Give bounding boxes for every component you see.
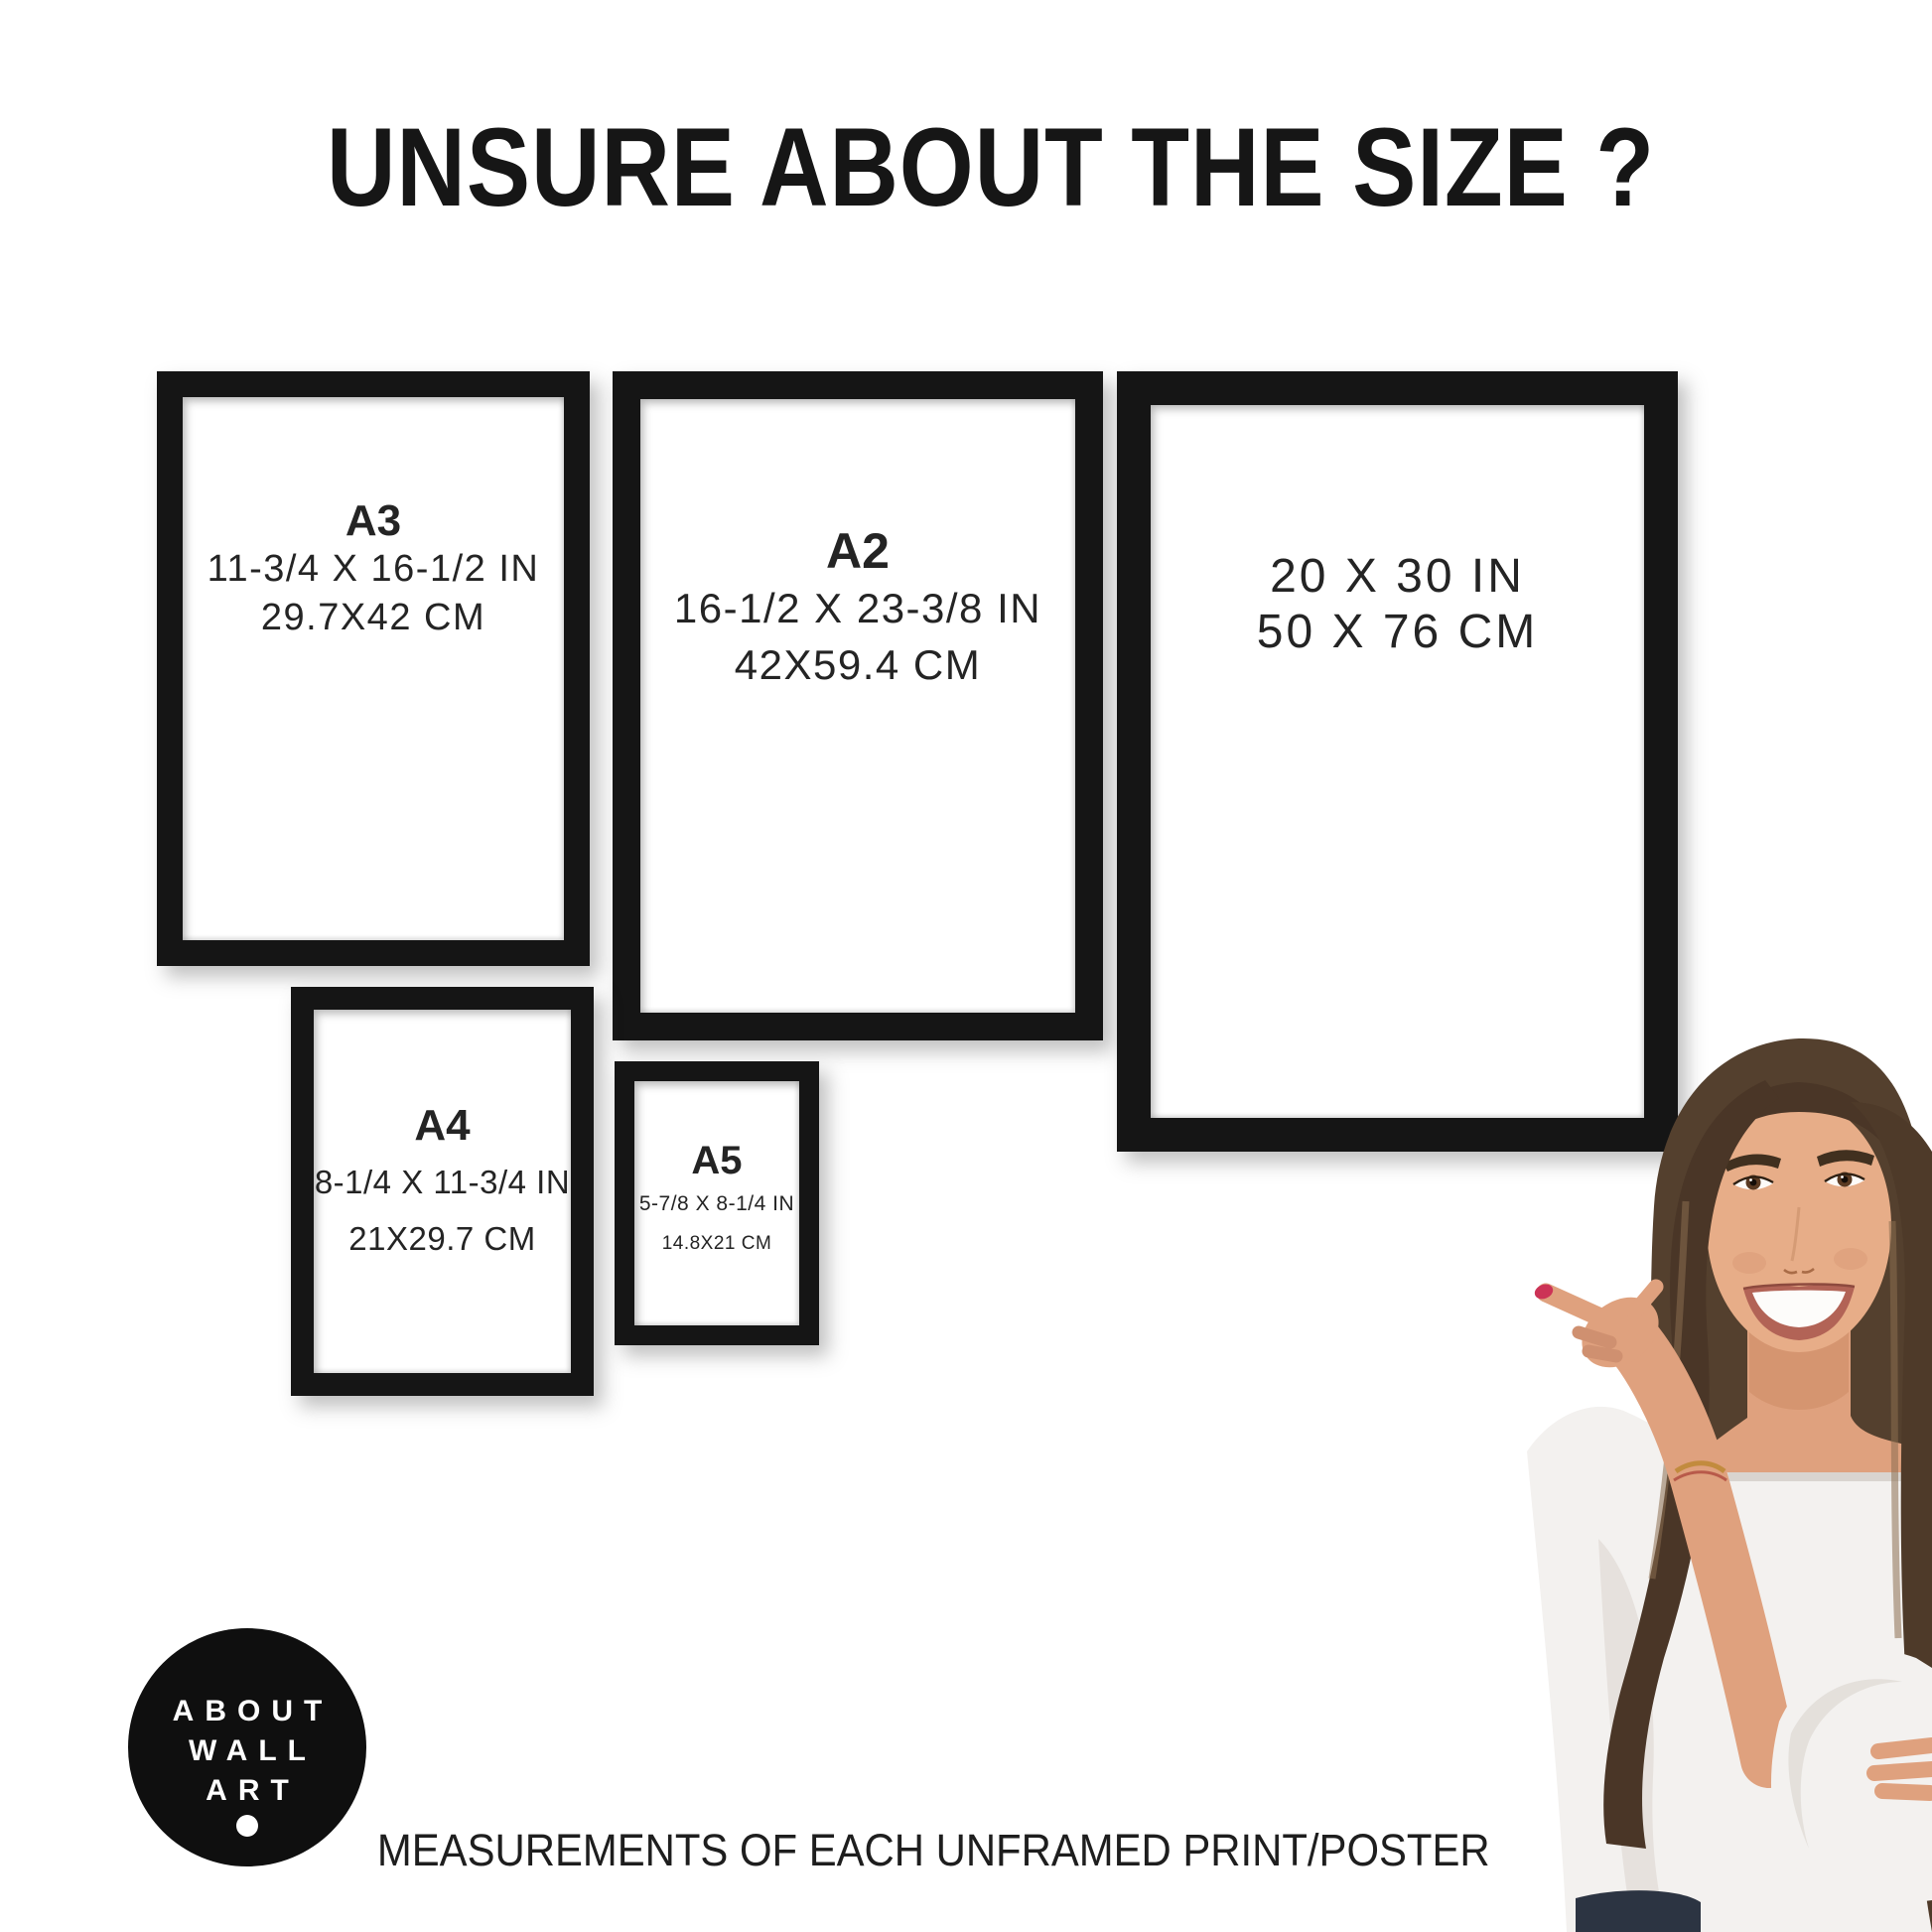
index-finger (1546, 1293, 1598, 1316)
logo-dot (236, 1815, 258, 1837)
frame-a2-label: A2 (640, 523, 1075, 580)
frame-a5-inches: 5-7/8 X 8-1/4 IN (634, 1184, 799, 1224)
logo-line-art: ART (139, 1771, 366, 1811)
frame-20x30-cm: 50 X 76 CM (1151, 605, 1644, 660)
frame-a4-cm: 21X29.7 CM (314, 1210, 571, 1267)
frame-a4-text: A4 8-1/4 X 11-3/4 IN 21X29.7 CM (314, 1097, 571, 1267)
frame-a3-cm: 29.7X42 CM (183, 594, 564, 642)
frame-a5: A5 5-7/8 X 8-1/4 IN 14.8X21 CM (615, 1061, 819, 1345)
frame-a3-text: A3 11-3/4 X 16-1/2 IN 29.7X42 CM (183, 496, 564, 642)
frame-a2: A2 16-1/2 X 23-3/8 IN 42X59.4 CM (613, 371, 1103, 1040)
jeans (1576, 1890, 1701, 1932)
brand-logo: ABOUT WALL ART (128, 1628, 366, 1866)
frame-a5-mat: A5 5-7/8 X 8-1/4 IN 14.8X21 CM (634, 1081, 799, 1325)
frame-a3-label: A3 (183, 496, 564, 545)
frame-a4-inches: 8-1/4 X 11-3/4 IN (314, 1154, 571, 1210)
left-hand-fingers (1874, 1745, 1932, 1793)
frame-a2-mat: A2 16-1/2 X 23-3/8 IN 42X59.4 CM (640, 399, 1075, 1013)
frame-20x30-inches: 20 X 30 IN (1151, 549, 1644, 605)
frame-20x30-text: 20 X 30 IN 50 X 76 CM (1151, 549, 1644, 660)
frame-20x30-mat: 20 X 30 IN 50 X 76 CM (1151, 405, 1644, 1118)
frame-a2-cm: 42X59.4 CM (640, 636, 1075, 693)
frame-a4-mat: A4 8-1/4 X 11-3/4 IN 21X29.7 CM (314, 1010, 571, 1373)
woman-photo (1449, 1023, 1932, 1932)
brand-logo-text: ABOUT WALL ART (128, 1692, 366, 1811)
frame-a3: A3 11-3/4 X 16-1/2 IN 29.7X42 CM (157, 371, 590, 966)
size-guide-poster: UNSURE ABOUT THE SIZE ? A3 11-3/4 X 16-1… (0, 0, 1932, 1932)
frame-a5-cm: 14.8X21 CM (634, 1224, 799, 1264)
footer-caption: MEASUREMENTS OF EACH UNFRAMED PRINT/POST… (377, 1825, 1430, 1876)
logo-line-wall: WALL (139, 1731, 366, 1771)
frame-a4-label: A4 (314, 1097, 571, 1154)
logo-line-about: ABOUT (139, 1692, 366, 1731)
frame-a2-text: A2 16-1/2 X 23-3/8 IN 42X59.4 CM (640, 523, 1075, 693)
frame-a5-text: A5 5-7/8 X 8-1/4 IN 14.8X21 CM (634, 1138, 799, 1264)
frame-a3-inches: 11-3/4 X 16-1/2 IN (183, 545, 564, 594)
cheek-right (1834, 1248, 1867, 1270)
frame-a4: A4 8-1/4 X 11-3/4 IN 21X29.7 CM (291, 987, 594, 1396)
frame-a5-label: A5 (634, 1138, 799, 1184)
page-title: UNSURE ABOUT THE SIZE ? (182, 103, 1801, 231)
frame-a2-inches: 16-1/2 X 23-3/8 IN (640, 580, 1075, 636)
frame-a3-mat: A3 11-3/4 X 16-1/2 IN 29.7X42 CM (183, 397, 564, 940)
cheek-left (1732, 1252, 1766, 1274)
